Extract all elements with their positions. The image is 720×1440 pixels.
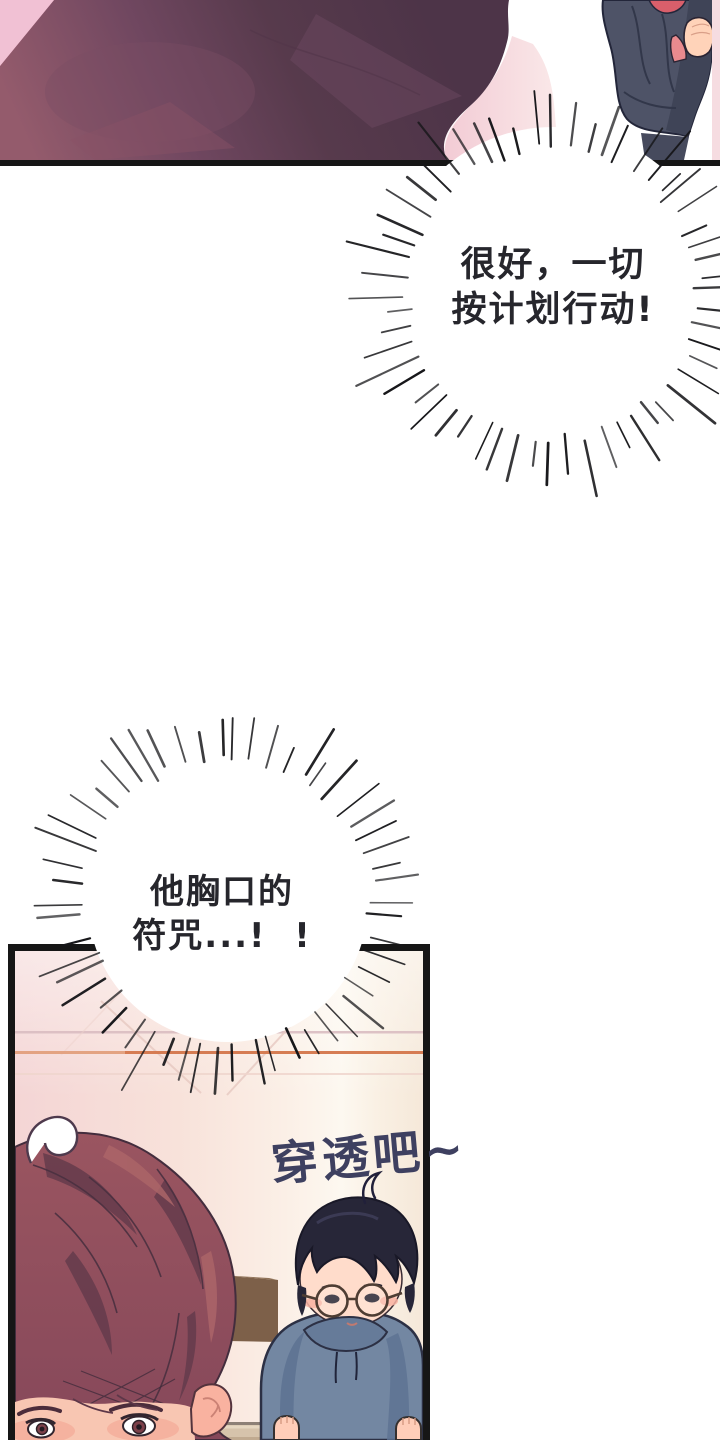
burst-2-line-1: 他胸口的 (72, 870, 372, 914)
burst-2-line-2: 符咒...! ! (72, 914, 372, 958)
comic-page: 很好，一切 按计划行动! 他胸口的 符咒...! ! 穿透吧~ (0, 0, 720, 1440)
speech-burst-2-text: 他胸口的 符咒...! ! (72, 870, 372, 958)
speech-burst-1-text: 很好，一切 按计划行动! (393, 243, 713, 333)
hand (684, 18, 713, 57)
panel-top-art (0, 0, 720, 166)
panel-top (0, 0, 720, 166)
panel-bottom (8, 944, 430, 1440)
panel-bottom-art (15, 951, 423, 1440)
burst-1-line-2: 按计划行动! (393, 288, 713, 333)
burst-1-line-1: 很好，一切 (393, 243, 713, 288)
dark-silhouette-figure (0, 0, 509, 160)
panel-top-border (0, 160, 720, 166)
pants (641, 133, 689, 160)
right-wall-strip (712, 0, 720, 160)
